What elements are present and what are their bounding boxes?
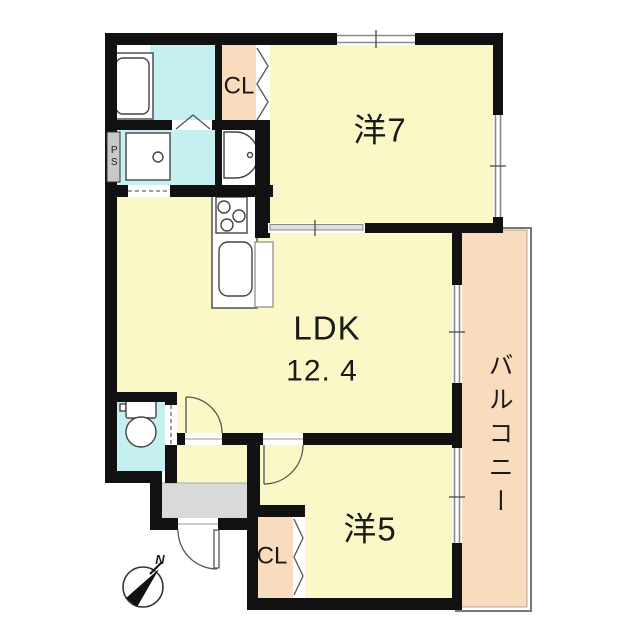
closet-upper-label: CL <box>224 73 255 98</box>
entry-floor <box>162 483 247 518</box>
washing-machine-pan-icon <box>126 133 170 180</box>
closet-lower-label: CL <box>257 543 288 568</box>
room-label-western7: 洋7 <box>353 114 406 149</box>
compass-icon <box>123 562 163 607</box>
room-label-western5: 洋5 <box>343 513 396 548</box>
compass-north-label: N <box>155 553 164 567</box>
bathtub-icon <box>112 53 153 119</box>
room-size-ldk: 12. 4 <box>286 355 358 387</box>
room-label-ldk: LDK <box>293 312 360 347</box>
pipe-space-label: PS <box>108 145 119 169</box>
kitchen-sink-icon <box>219 242 252 296</box>
balcony-label: バルコニー <box>486 352 512 522</box>
hallway-floor <box>177 443 247 483</box>
door-toilet <box>165 405 177 445</box>
closet-lower-folding-door <box>293 517 305 598</box>
door-washroom <box>128 185 170 197</box>
stove-icon <box>216 197 247 233</box>
floorplan-canvas: 洋7 LDK 12. 4 洋5 バルコニー CL CL PS N <box>0 0 640 640</box>
door-entry <box>178 518 219 569</box>
bathroom-wet-floor <box>150 45 215 120</box>
closet-upper-folding-door <box>256 45 270 120</box>
